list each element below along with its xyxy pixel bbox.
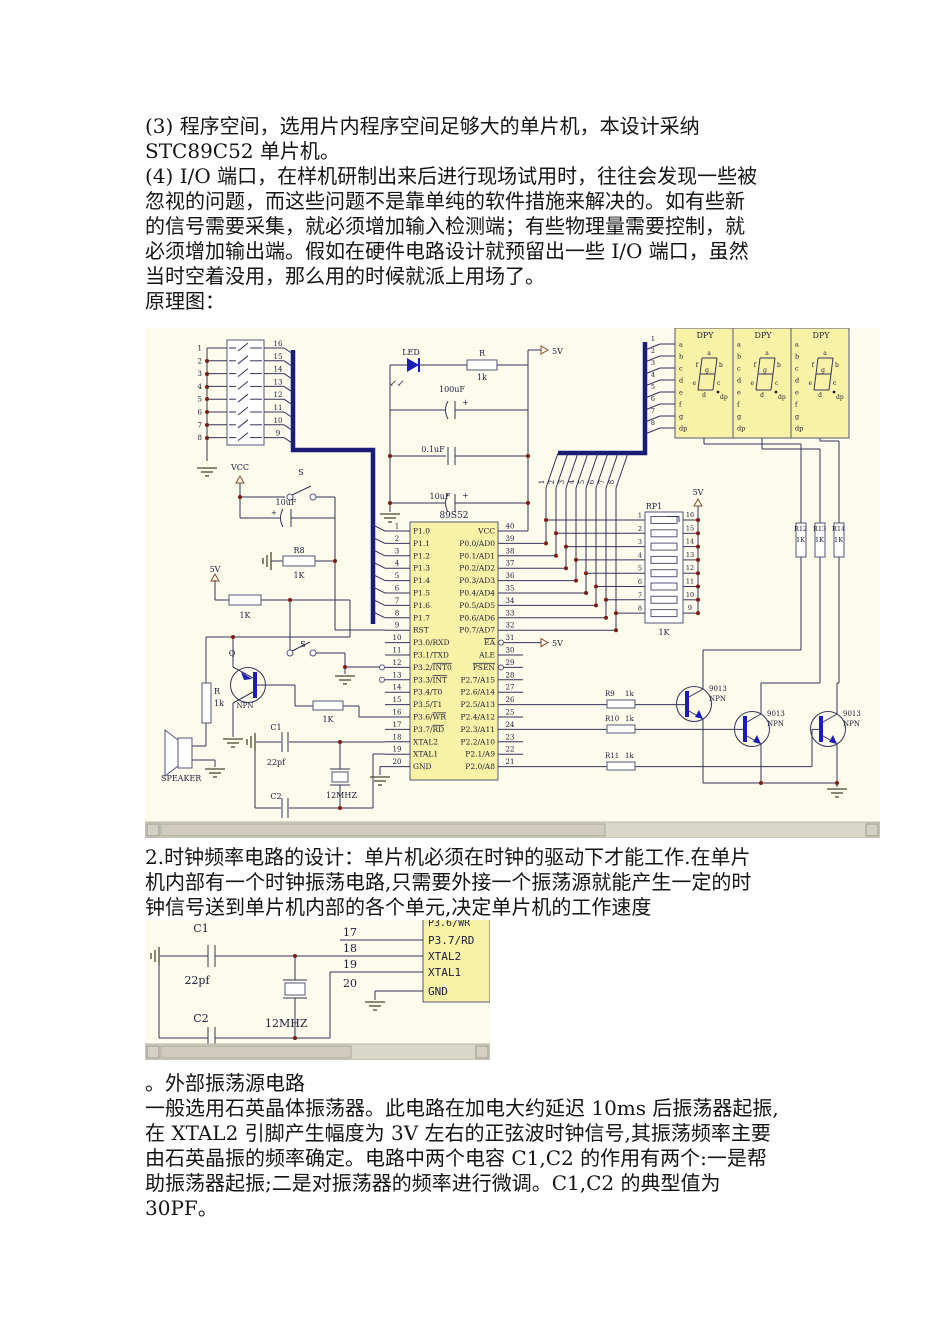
display-pin-number: 3	[651, 359, 655, 367]
mcu-pin-label: P1.5	[413, 589, 430, 598]
dip-pin-number: 1	[198, 345, 202, 353]
mcu-pin-number: 2	[395, 535, 399, 543]
cap-label: 10uF	[276, 498, 297, 507]
text-line: 必须增加输出端。假如在硬件电路设计就预留出一些 I/O 端口，虽然	[145, 239, 860, 264]
mcu-pin-label: P2.5/A13	[461, 700, 496, 709]
segment-label: a	[765, 350, 769, 357]
cap-label: C2	[270, 792, 281, 801]
display-pin-label: c	[737, 365, 741, 373]
junction-dot	[338, 806, 342, 810]
resistor-value: 1K	[815, 536, 824, 544]
junction-dot	[231, 635, 235, 639]
display-pin-label: a	[737, 341, 741, 349]
mcu-pin-number: 1	[395, 523, 399, 531]
segment-label: g	[763, 367, 767, 374]
cap-value: 22pf	[184, 974, 210, 987]
resistor-value: 1K	[322, 715, 334, 724]
display-pin-label: a	[795, 341, 799, 349]
display-pin-number: 1	[651, 335, 655, 343]
mcu-pin-number: 14	[393, 684, 402, 692]
text-line: 的信号需要采集，就必须增加输入检测端；有些物理量需要控制，就	[145, 214, 860, 239]
display-pin-number: 5	[651, 383, 655, 391]
mcu-pin-number: 35	[506, 585, 515, 593]
cap-label: C1	[193, 922, 208, 935]
dp-dot	[775, 391, 778, 394]
dip-pin-number: 11	[274, 404, 283, 412]
rp1-pin-number: 16	[686, 511, 694, 519]
oscillator-diagram-image: P3.6/WRC122pfC212MHZ17P3.7/RD18XTAL219XT…	[145, 920, 490, 1060]
segment-label: d	[702, 392, 706, 399]
mcu-pin-number: 33	[506, 609, 515, 617]
crystal-label: 12MHZ	[326, 791, 357, 800]
mcu-pin-label: P3.7/RD	[428, 934, 474, 947]
rp1-resistor	[651, 543, 677, 550]
mcu-pin-label: EA	[484, 638, 495, 647]
pin-bubble	[380, 677, 385, 682]
pin-bubble	[499, 640, 504, 645]
text-line: 原理图：	[145, 289, 860, 314]
resistor-value: 1k	[477, 373, 487, 382]
display-pin-number: 6	[651, 395, 655, 403]
mcu-pin-label: P1.3	[413, 564, 430, 573]
dip-pin-number: 4	[198, 383, 203, 391]
resistor	[202, 683, 211, 723]
junction-dot	[205, 423, 209, 427]
junction-dot	[614, 628, 618, 632]
mcu-pin-label: P0.7/AD7	[459, 626, 495, 635]
speaker-label: SPEAKER	[161, 774, 202, 783]
cap-polarity: +	[462, 398, 469, 407]
junction-dot	[584, 591, 588, 595]
cap-label: C1	[270, 723, 281, 732]
resistor-value: 1k	[625, 715, 634, 723]
mcu-pin-number: 15	[393, 696, 402, 704]
rp1-pin-number: 4	[638, 551, 642, 559]
mcu-pin-number: 26	[506, 696, 515, 704]
segment-label: e	[750, 380, 754, 387]
rp1-pin-number: 11	[686, 578, 694, 586]
resistor-label: R12	[794, 525, 807, 533]
display-pin-label: b	[795, 353, 799, 361]
cap-value: 22pf	[267, 758, 286, 767]
resistor-label: R	[479, 349, 486, 358]
dip-pin-number: 5	[198, 396, 202, 404]
display-pin-label: dp	[679, 425, 687, 433]
junction-dot	[293, 1036, 297, 1040]
power-5v-label: 5V	[552, 347, 563, 356]
mcu-pin-label: P3.2/INT0	[413, 663, 452, 672]
display-pin-number: 4	[651, 371, 655, 379]
segment-label: a	[823, 350, 827, 357]
mcu-pin-label: P3.0/RXD	[413, 638, 450, 647]
mcu-pin-number: 4	[395, 560, 400, 568]
dip-pin-number: 7	[198, 421, 202, 429]
resistor	[607, 725, 635, 733]
dip-pin-number: 2	[198, 357, 202, 365]
rp1-resistor	[651, 583, 677, 590]
paragraph-block-1: (3) 程序空间，选用片内程序空间足够大的单片机，本设计采纳 STC89C52 …	[145, 114, 860, 314]
resistor	[313, 701, 343, 710]
mcu-pin-number: 34	[506, 597, 515, 605]
rp1-resistor	[651, 570, 677, 577]
resistor-label: R13	[813, 525, 826, 533]
mcu-pin-number: 25	[506, 709, 515, 717]
junction-dot	[388, 501, 392, 505]
mcu-pin-label: P3.6/WR	[413, 713, 446, 722]
display-pin-number: 2	[651, 347, 655, 355]
junction-dot	[696, 545, 700, 549]
mcu-pin-label: P3.7/RD	[413, 725, 444, 734]
dip-pin-number: 12	[274, 391, 283, 399]
junction-dot	[696, 598, 700, 602]
display-pin-number: 8	[651, 419, 655, 427]
scrollbar-thumb	[161, 824, 605, 836]
mcu-pin-label: P2.7/A15	[461, 675, 496, 684]
scrollbar-right-button	[866, 824, 878, 836]
power-5v-label: 5V	[693, 488, 704, 497]
junction-dot	[696, 531, 700, 535]
mcu-pin-label: P2.0/A8	[465, 762, 495, 771]
led-label: LED	[402, 348, 420, 357]
text-line: 30PF。	[145, 1196, 860, 1221]
segment-label: g	[705, 367, 709, 374]
rp1-value: 1K	[658, 628, 670, 637]
mcu-pin-label: XTAL1	[428, 966, 461, 979]
mcu-pin-number: 18	[393, 733, 402, 741]
mcu-pin-number: 38	[506, 547, 515, 555]
dip-pin-number: 10	[274, 417, 283, 425]
junction-dot	[333, 559, 337, 563]
junction-dot	[574, 579, 578, 583]
seven-segment-display	[733, 328, 791, 438]
text-line: 钟信号送到单片机内部的各个单元,决定单片机的工作速度	[145, 895, 860, 920]
display-pin-label: e	[795, 389, 799, 397]
resistor-label: R10	[605, 715, 619, 723]
switch-contact	[310, 494, 316, 500]
paragraph-block-2: 2.时钟频率电路的设计：单片机必须在时钟的驱动下才能工作.在单片 机内部有一个时…	[145, 845, 860, 920]
display-pin-label: e	[737, 389, 741, 397]
segment-label: dp	[836, 394, 844, 401]
text-line: (4) I/O 端口，在样机研制出来后进行现场试用时，往往会发现一些被	[145, 164, 860, 189]
mcu-pin-label: P0.6/AD6	[459, 613, 495, 622]
transistor-icon	[685, 691, 689, 717]
mcu-pin-number: 20	[343, 977, 357, 990]
text-line: 当时空着没用，那么用的时候就派上用场了。	[145, 264, 860, 289]
resistor-value: 1k	[625, 752, 634, 760]
mcu-pin-label: PSEN	[473, 663, 496, 672]
rp1-label: RP1	[646, 502, 663, 511]
transistor-icon	[819, 716, 823, 742]
resistor	[607, 762, 635, 770]
bus-wire-number: 3	[558, 480, 566, 484]
transistor-type: NPN	[237, 702, 254, 710]
junction-dot	[604, 616, 608, 620]
mcu-pin-number: 17	[343, 926, 357, 939]
dip-pin-number: 15	[274, 353, 283, 361]
junction-dot	[696, 611, 700, 615]
mcu-pin-label: ALE	[478, 651, 495, 660]
text-line: 2.时钟频率电路的设计：单片机必须在时钟的驱动下才能工作.在单片	[145, 845, 860, 870]
mcu-pin-number: 19	[343, 958, 357, 971]
transistor-label: Q	[229, 649, 236, 658]
rp1-pin-number: 15	[686, 524, 694, 532]
display-title: DPY	[696, 331, 714, 340]
junction-dot	[205, 385, 209, 389]
dp-dot	[833, 391, 836, 394]
mcu-pin-label: XTAL2	[413, 737, 438, 746]
junction-dot	[574, 558, 578, 562]
mcu-pin-number: 3	[395, 547, 399, 555]
scrollbar-left-button	[147, 1046, 159, 1058]
dip-pin-number: 8	[198, 434, 202, 442]
resistor-label: R11	[605, 752, 619, 760]
resistor-value: 1k	[214, 699, 224, 708]
resistor-label: R9	[605, 690, 615, 698]
rp1-pin-number: 1	[638, 512, 642, 520]
mcu-pin-label: XTAL1	[413, 750, 438, 759]
speaker-icon	[178, 738, 192, 768]
mcu-pin-number: 10	[393, 634, 402, 642]
mcu-title: 89S52	[439, 511, 468, 521]
dip-pin-number: 14	[274, 366, 283, 374]
seven-segment-display	[791, 328, 849, 438]
resistor-value: 1k	[625, 690, 634, 698]
mcu-pin-label: GND	[428, 985, 448, 998]
crystal-icon	[332, 772, 348, 782]
led-arrows: ↙↙	[389, 379, 404, 389]
display-pin-label: d	[795, 377, 799, 385]
junction-dot	[584, 571, 588, 575]
rp1-pin-number: 10	[686, 591, 694, 599]
mcu-pin-label: P2.4/A12	[461, 713, 496, 722]
resistor	[229, 595, 261, 605]
segment-label: d	[760, 392, 764, 399]
mcu-pin-number: 11	[393, 647, 402, 655]
mcu-pin-number: 39	[506, 535, 515, 543]
mcu-pin-number: 29	[506, 659, 515, 667]
mcu-pin-label: P3.5/T1	[413, 700, 442, 709]
transistor-label: 9013	[843, 710, 861, 718]
rp1-pin-number: 13	[686, 551, 694, 559]
display-pin-label: c	[795, 365, 799, 373]
junction-dot	[205, 397, 209, 401]
display-pin-label: b	[679, 353, 683, 361]
mcu-pin-label: XTAL2	[428, 950, 461, 963]
text-line: 在 XTAL2 引脚产生幅度为 3V 左右的正弦波时钟信号,其振荡频率主要	[145, 1121, 860, 1146]
dip-pin-number: 3	[198, 370, 202, 378]
mcu-pin-number: 40	[506, 523, 515, 531]
text-line: (3) 程序空间，选用片内程序空间足够大的单片机，本设计采纳	[145, 114, 860, 139]
power-5v-label: 5V	[552, 639, 563, 648]
mcu-pin-number: 22	[506, 746, 515, 754]
junction-dot	[288, 598, 292, 602]
display-title: DPY	[812, 331, 830, 340]
resistor-value: 1K	[796, 536, 805, 544]
scrollbar-right-button	[476, 1046, 488, 1058]
mcu-pin-number: 31	[506, 634, 515, 642]
display-title: DPY	[754, 331, 772, 340]
segment-label: d	[818, 392, 822, 399]
junction-dot	[238, 495, 242, 499]
junction-dot	[696, 558, 700, 562]
segment-label: g	[821, 367, 825, 374]
mcu-pin-label: P2.3/A11	[461, 725, 495, 734]
mcu-pin-label: P3.4/T0	[413, 688, 443, 697]
mcu-pin-number: 17	[393, 721, 402, 729]
segment-label: e	[808, 380, 812, 387]
display-pin-label: c	[679, 365, 683, 373]
display-pin-label: dp	[795, 425, 803, 433]
rp1-pin-number: 6	[638, 578, 642, 586]
mcu-pin-label: P0.3/AD3	[459, 576, 495, 585]
rp1-pin-number: 3	[638, 538, 642, 546]
junction-dot	[205, 359, 209, 363]
mcu-pin-number: 16	[393, 709, 402, 717]
switch-label: S	[298, 468, 303, 477]
dp-dot	[717, 391, 720, 394]
dip-pin-number: 9	[276, 430, 280, 438]
rp1-resistor	[651, 610, 677, 617]
rp1-resistor	[651, 517, 677, 524]
display-pin-label: dp	[737, 425, 745, 433]
segment-label: b	[835, 362, 839, 369]
mcu-pin-number: 18	[343, 942, 357, 955]
junction-dot	[526, 501, 530, 505]
pin-bubble	[380, 665, 385, 670]
mcu-pin-label: P2.2/A10	[461, 737, 496, 746]
junction-dot	[388, 454, 392, 458]
pin-bubble	[499, 665, 504, 670]
text-line: 机内部有一个时钟振荡电路,只需要外接一个振荡源就能产生一定的时	[145, 870, 860, 895]
junction-dot	[544, 541, 548, 545]
resistor	[283, 556, 315, 566]
resistor-value: 1K	[293, 571, 305, 580]
transistor-type: NPN	[709, 695, 726, 703]
rp1-pin-number: 14	[686, 538, 694, 546]
junction-dot	[554, 554, 558, 558]
resistor-label: R8	[293, 546, 304, 555]
cap-label: 0.1uF	[421, 445, 445, 454]
transistor-label: 9013	[767, 710, 785, 718]
seven-segment-display	[675, 328, 733, 438]
mcu-pin-label: P1.4	[413, 576, 430, 585]
mcu-pin-number: 5	[395, 572, 399, 580]
resistor-value: 1K	[834, 536, 843, 544]
junction-dot	[526, 454, 530, 458]
junction-dot	[696, 571, 700, 575]
dip-pin-number: 13	[274, 378, 283, 386]
display-pin-number: 7	[651, 407, 655, 415]
mcu-pin-label: VCC	[477, 527, 495, 536]
mcu-pin-number: 24	[506, 721, 515, 729]
mcu-pin-number: 37	[506, 560, 515, 568]
display-pin-label: e	[679, 389, 683, 397]
mcu-pin-label: P3.6/WR	[428, 920, 471, 929]
mcu-pin-label: P2.6/A14	[461, 688, 496, 697]
junction-dot	[696, 518, 700, 522]
junction-dot	[696, 585, 700, 589]
bus-wire-number: 8	[608, 480, 616, 484]
mcu-pin-label: P0.4/AD4	[459, 589, 495, 598]
mcu-pin-number: 9	[395, 622, 399, 630]
display-pin-label: d	[679, 377, 683, 385]
main-schematic-image: 1162153144135126117108989S521P1.02P1.13P…	[145, 328, 880, 838]
junction-dot	[759, 781, 763, 785]
junction-dot	[205, 436, 209, 440]
bus-wire-number: 1	[538, 480, 546, 484]
rp1-network	[645, 512, 683, 623]
mcu-pin-label: P1.2	[413, 551, 430, 560]
segment-label: b	[777, 362, 781, 369]
segment-label: e	[692, 380, 696, 387]
resistor	[467, 360, 497, 370]
rp1-pin-number: 12	[686, 564, 694, 572]
segment-label: b	[719, 362, 723, 369]
junction-dot	[554, 531, 558, 535]
resistor-label: R14	[832, 525, 845, 533]
mcu-pin-label: P3.3/INT	[413, 675, 447, 684]
segment-label: dp	[778, 394, 786, 401]
junction-dot	[604, 598, 608, 602]
text-line: STC89C52 单片机。	[145, 139, 860, 164]
cap-polarity: +	[271, 509, 277, 517]
mcu-pin-number: 36	[506, 572, 515, 580]
transistor-icon	[253, 672, 257, 698]
mcu-pin-number: 23	[506, 733, 515, 741]
mcu-pin-label: P1.6	[413, 601, 430, 610]
junction-dot	[343, 665, 347, 669]
cap-label: 100uF	[439, 385, 465, 394]
rp1-resistor	[651, 596, 677, 603]
rp1-pin-number: 2	[638, 525, 642, 533]
mcu-pin-label: P1.0	[413, 527, 430, 536]
dip-pin-number: 6	[198, 409, 203, 417]
mcu-pin-number: 6	[395, 585, 400, 593]
mcu-pin-number: 21	[506, 758, 515, 766]
resistor	[607, 700, 635, 708]
bus-wire-number: 5	[578, 480, 586, 484]
mcu-pin-number: 27	[506, 684, 515, 692]
mcu-pin-label: P1.1	[413, 539, 430, 548]
text-line: 一般选用石英晶体振荡器。此电路在加电大约延迟 10ms 后振荡器起振,	[145, 1096, 860, 1121]
mcu-pin-number: 28	[506, 671, 515, 679]
switch-contact	[310, 650, 316, 656]
mcu-pin-label: P1.7	[413, 613, 430, 622]
mcu-pin-number: 19	[393, 746, 402, 754]
mcu-pin-number: 13	[393, 671, 402, 679]
cap-polarity: +	[462, 491, 469, 500]
rp1-pin-number: 5	[638, 565, 642, 573]
scrollbar-left-button	[147, 824, 159, 836]
mcu-pin-number: 7	[395, 597, 399, 605]
power-5v-label: 5V	[210, 565, 221, 574]
cap-label: C2	[193, 1012, 208, 1025]
segment-label: dp	[720, 394, 728, 401]
text-line: 忽视的问题，而这些问题不是靠单纯的软件措施来解决的。如有些新	[145, 189, 860, 214]
mcu-pin-label: P0.0/AD0	[459, 539, 495, 548]
segment-label: a	[707, 350, 711, 357]
junction-dot	[293, 954, 297, 958]
mcu-pin-label: P2.1/A9	[465, 750, 495, 759]
text-line: 助振荡器起振;二是对振荡器的频率进行微调。C1,C2 的典型值为	[145, 1171, 860, 1196]
text-line: 。外部振荡源电路	[145, 1071, 860, 1096]
transistor-label: 9013	[709, 685, 727, 693]
mcu-pin-label: RST	[413, 626, 429, 635]
dip-pin-number: 16	[274, 340, 283, 348]
mcu-pin-label: P0.1/AD1	[459, 551, 495, 560]
junction-dot	[614, 611, 618, 615]
junction-dot	[205, 410, 209, 414]
